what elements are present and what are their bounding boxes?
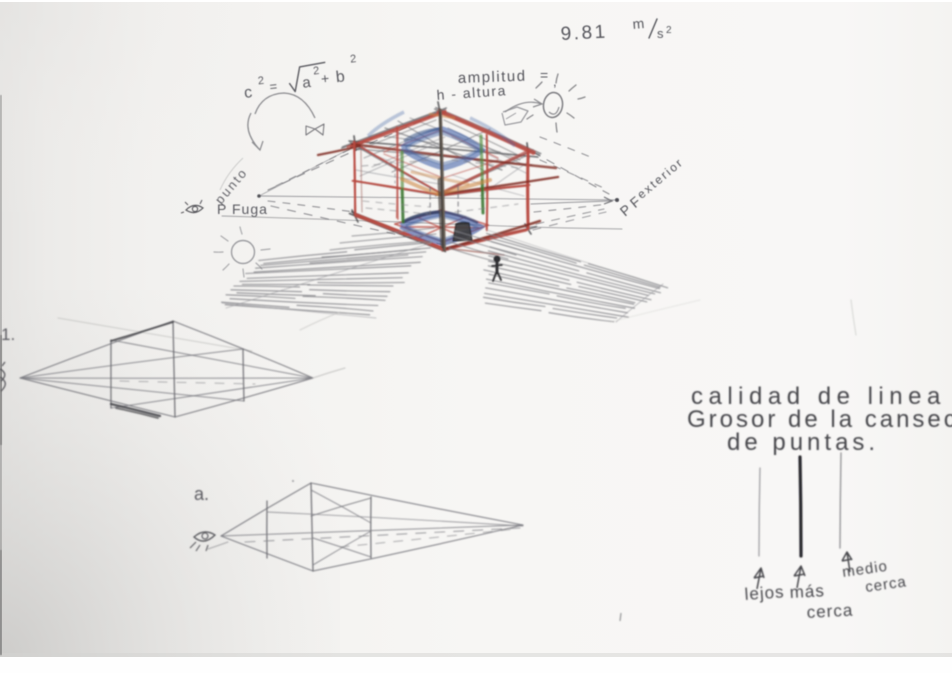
svg-text:2: 2	[350, 53, 357, 66]
svg-text:s: s	[657, 26, 664, 41]
svg-text:lejos: lejos	[744, 582, 785, 604]
svg-text:9.81: 9.81	[560, 22, 608, 45]
svg-text:P Fuga: P Fuga	[217, 201, 268, 217]
svg-text:cerca: cerca	[806, 601, 854, 622]
svg-text:de puntas.: de puntas.	[727, 429, 879, 456]
svg-text:b: b	[335, 68, 346, 86]
svg-text:2: 2	[313, 65, 320, 78]
svg-text:2: 2	[257, 75, 264, 88]
svg-text:a.: a.	[194, 484, 209, 504]
svg-text:=: =	[269, 78, 278, 94]
svg-text:m: m	[632, 15, 645, 32]
svg-text:1.: 1.	[1, 325, 15, 344]
svg-text:más: más	[789, 581, 825, 602]
svg-text:+: +	[320, 70, 330, 87]
svg-text:2: 2	[666, 25, 672, 36]
svg-text:=: =	[540, 67, 548, 83]
